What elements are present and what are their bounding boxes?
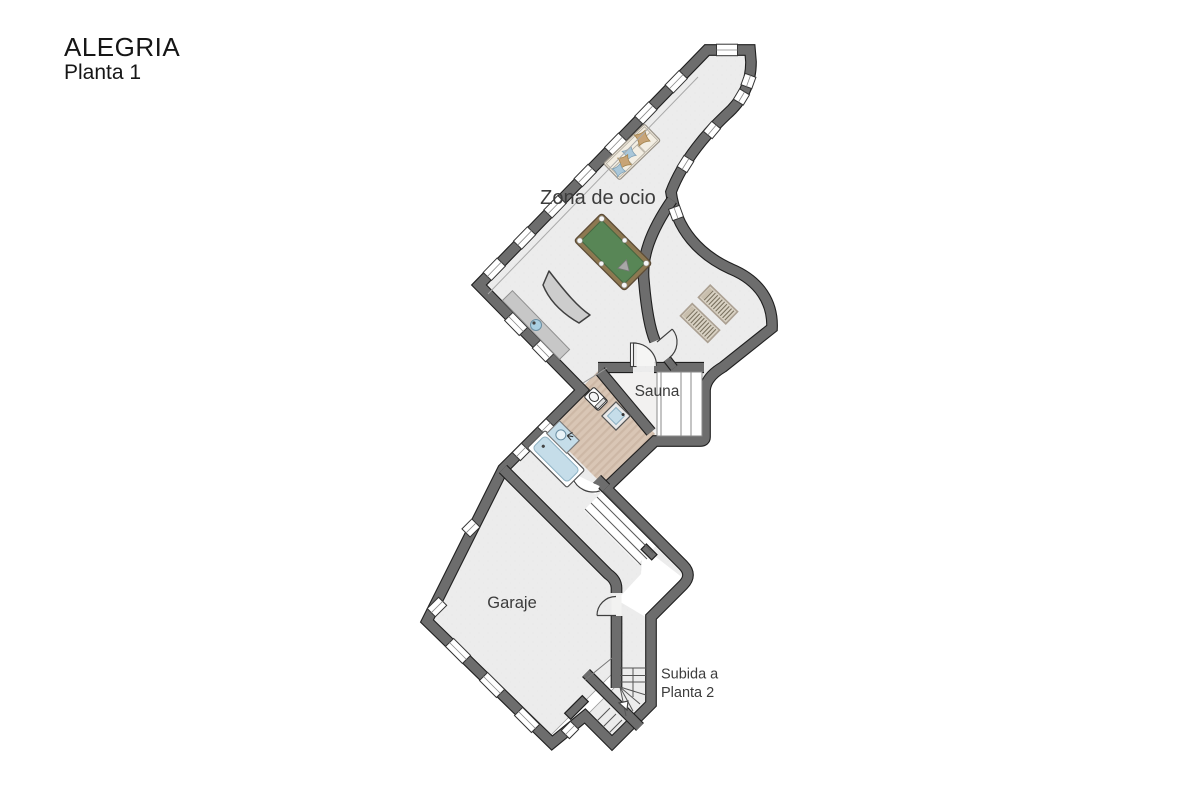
svg-text:Subida a: Subida a — [661, 667, 719, 683]
svg-text:Planta 2: Planta 2 — [661, 685, 714, 701]
svg-text:Sauna: Sauna — [635, 383, 680, 400]
svg-text:Zona de ocio: Zona de ocio — [540, 187, 656, 209]
svg-text:Garaje: Garaje — [487, 594, 537, 612]
